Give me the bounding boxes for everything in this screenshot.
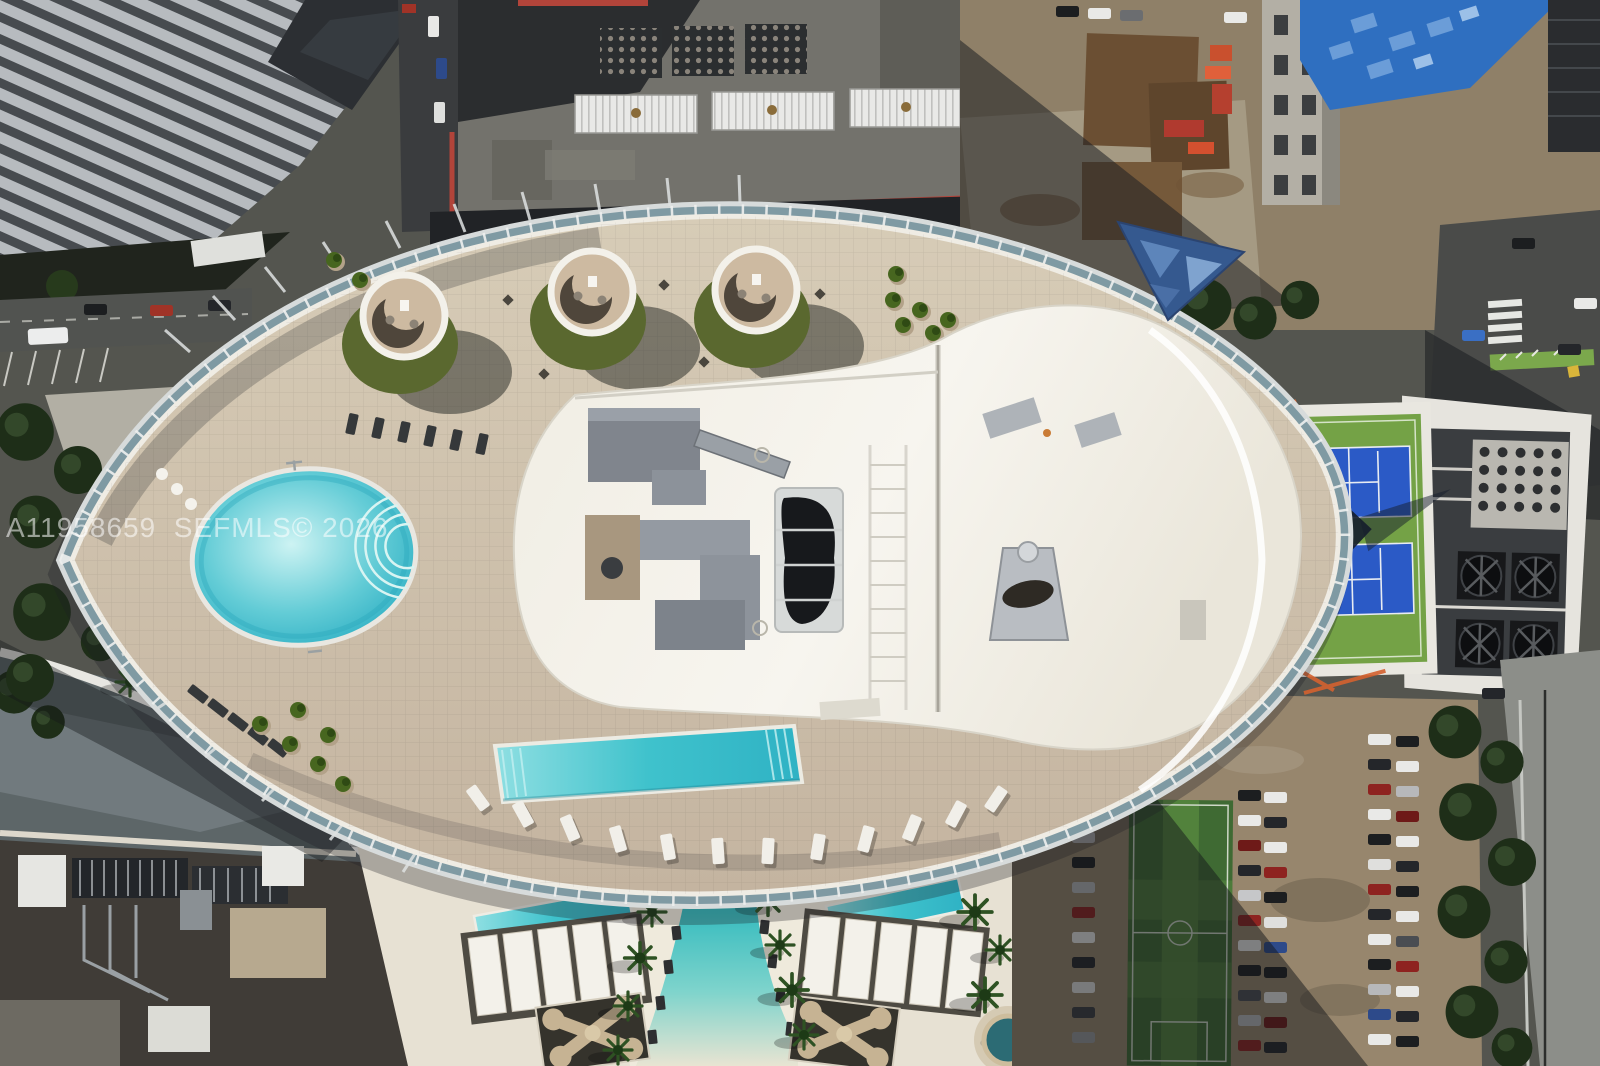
- aerial-photo: A11958659 SEFMLS© 2026: [0, 0, 1600, 1066]
- aerial-photo-canvas: [0, 0, 1600, 1066]
- street-top-vertical: [398, 0, 468, 232]
- skylight: [775, 488, 843, 632]
